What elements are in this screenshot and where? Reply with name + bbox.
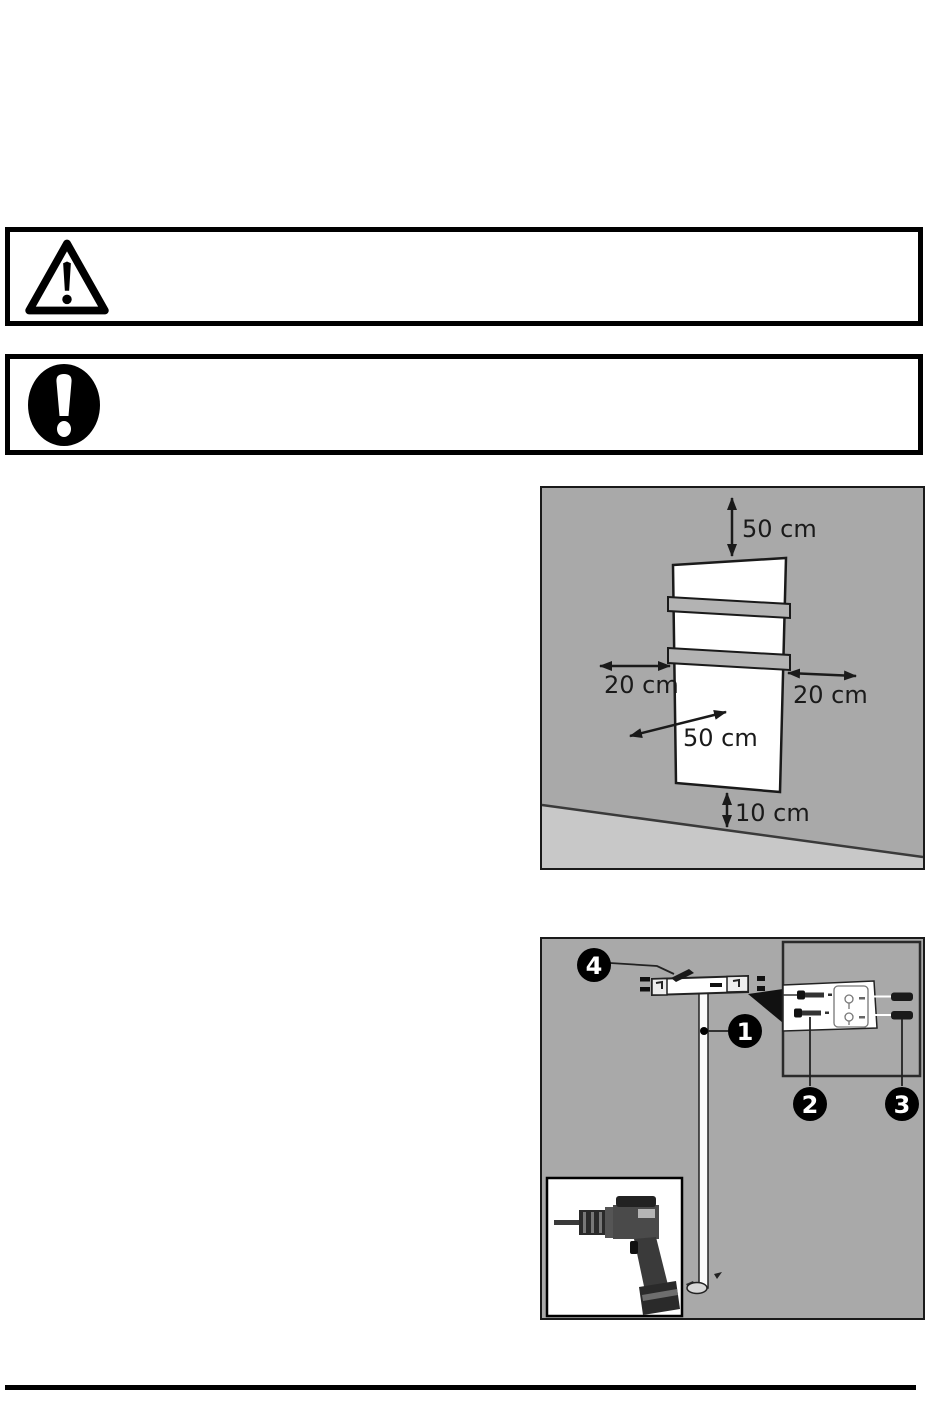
right-clearance-label: 20 cm — [793, 681, 868, 709]
svg-text:4: 4 — [586, 952, 603, 980]
mandatory-notice-box — [5, 354, 923, 455]
left-clearance-label: 20 cm — [604, 671, 679, 699]
svg-text:1: 1 — [737, 1018, 754, 1046]
mandatory-exclamation-icon — [26, 362, 102, 448]
manual-page: 50 cm 20 cm 20 cm 50 cm 10 cm — [0, 0, 950, 1422]
drill-inset — [547, 1178, 682, 1316]
bracket-plate — [783, 981, 877, 1031]
footer-rule — [5, 1385, 916, 1390]
rod-marker-dot — [700, 1027, 708, 1035]
callout-3: 3 — [885, 1087, 919, 1121]
svg-text:3: 3 — [894, 1091, 911, 1119]
callout-4: 4 — [577, 948, 611, 982]
top-clearance-label: 50 cm — [742, 515, 817, 543]
bottom-clearance-label: 10 cm — [735, 799, 810, 827]
warning-triangle-icon — [24, 237, 110, 317]
heater-panel — [673, 558, 786, 792]
mounting-diagram: 4 1 2 3 — [540, 937, 925, 1320]
svg-text:2: 2 — [802, 1091, 819, 1119]
clearance-diagram: 50 cm 20 cm 20 cm 50 cm 10 cm — [540, 486, 925, 870]
callout-1: 1 — [728, 1014, 762, 1048]
warning-notice-box — [5, 227, 923, 326]
front-clearance-label: 50 cm — [683, 724, 758, 752]
callout-2: 2 — [793, 1087, 827, 1121]
